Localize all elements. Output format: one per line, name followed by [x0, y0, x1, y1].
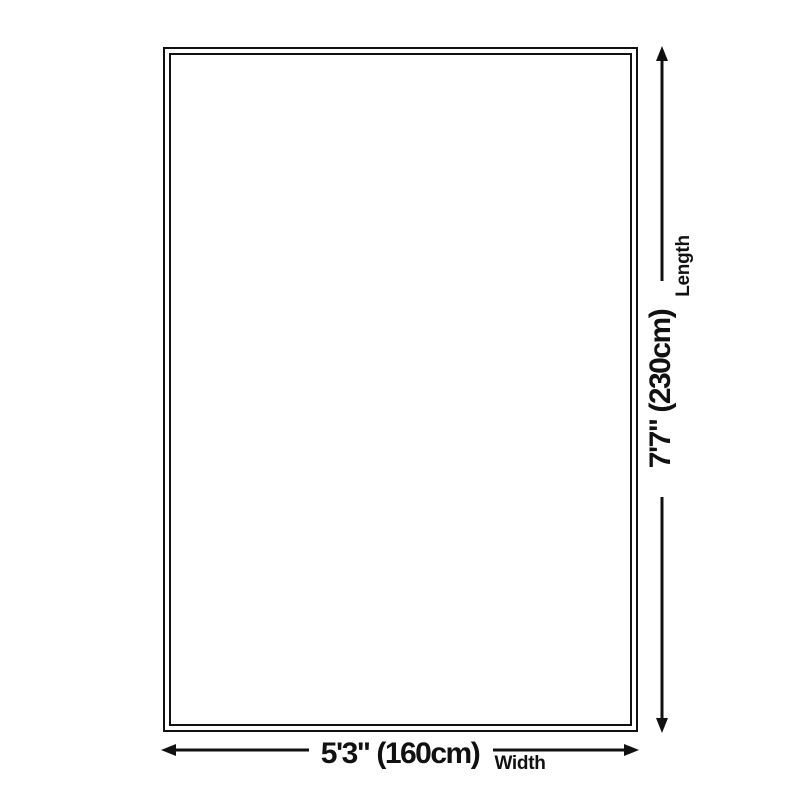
width-label: Width: [494, 753, 545, 775]
arrow-down-icon: [656, 718, 668, 733]
size-diagram: 7'7" (230cm) Length 5'3" (160cm) Width: [0, 0, 800, 800]
length-label: Length: [673, 235, 695, 297]
arrow-left-icon: [161, 744, 176, 756]
product-outline: [163, 47, 638, 732]
arrow-up-icon: [656, 46, 668, 61]
arrow-right-icon: [624, 744, 639, 756]
product-outline-inner: [169, 53, 632, 726]
width-value: 5'3" (160cm): [321, 737, 479, 771]
length-value: 7'7" (230cm): [644, 310, 678, 468]
